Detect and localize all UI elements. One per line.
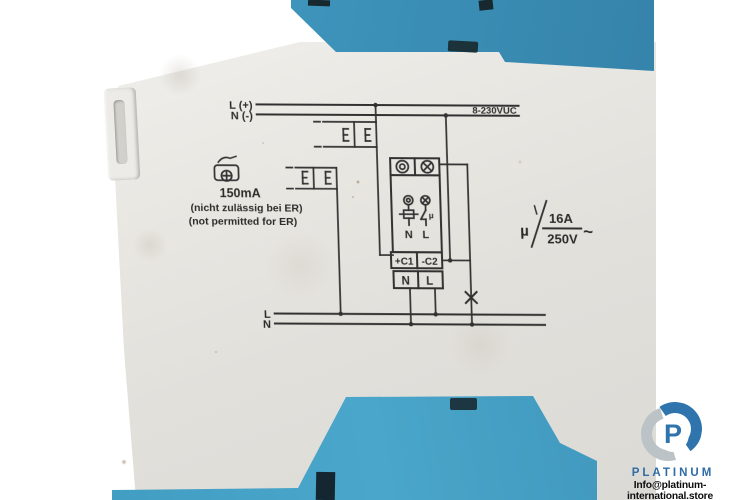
glow-lamp-icon (214, 156, 239, 181)
term-n-label: N (401, 276, 410, 288)
watermark-brand: PLATINUM (598, 467, 748, 479)
ctrl-plus-label: +C1 (395, 257, 414, 268)
lamp-terminal-icon (421, 161, 433, 173)
relay-contact-icon (420, 205, 426, 226)
mu-contact-label: µ (429, 210, 434, 220)
device-outline (388, 158, 443, 288)
push-button-symbol (343, 129, 348, 141)
note-de-label: (nicht zulässig bei ER) (190, 202, 302, 215)
terminal-slot-icon (448, 40, 479, 53)
pushbutton-group-2 (286, 168, 340, 314)
push-button-symbol (325, 172, 330, 184)
logo-letter: P (657, 416, 689, 452)
bottom-rail-n-label: N (263, 319, 271, 331)
ctrl-minus-label: -C2 (421, 257, 438, 268)
rating-ac-label: ~ (583, 222, 594, 241)
note-en-label: (not permitted for ER) (189, 216, 298, 229)
wiring-schematic: L (+) N (-) 8-230VUC (176, 88, 624, 350)
terminal-slot-icon (450, 398, 477, 410)
rating-voltage-label: 250V (547, 231, 578, 246)
terminal-slot-icon (316, 472, 335, 500)
platinum-logo: P (640, 402, 704, 466)
glow-current-label: 150mA (219, 186, 260, 200)
inner-lamp-icon (421, 196, 430, 205)
watermark-email: Info@platinum-international.store (592, 480, 748, 500)
top-rail-n-label: N (-) (231, 110, 254, 122)
contact-rating: µ 16A 250V ~ (519, 201, 593, 247)
rating-mu-label: µ (520, 223, 529, 240)
inner-socket-icon (404, 196, 413, 205)
supply-range-label: 8-230VUC (472, 106, 517, 117)
inner-n-label: N (405, 229, 413, 241)
product-photo: L (+) N (-) 8-230VUC (0, 0, 750, 500)
terminal-slot-icon (479, 0, 494, 11)
rating-current-label: 16A (549, 211, 574, 226)
electronics-block-icon (399, 205, 418, 226)
inner-l-label: L (422, 229, 429, 241)
socket-terminal-icon (396, 161, 408, 173)
terminal-slot-icon (308, 0, 330, 6)
output-wiring (438, 115, 478, 324)
push-button-symbol (365, 129, 370, 141)
term-l-label: L (426, 276, 433, 288)
device-supply-stubs (410, 288, 436, 324)
push-button-symbol (302, 172, 307, 184)
